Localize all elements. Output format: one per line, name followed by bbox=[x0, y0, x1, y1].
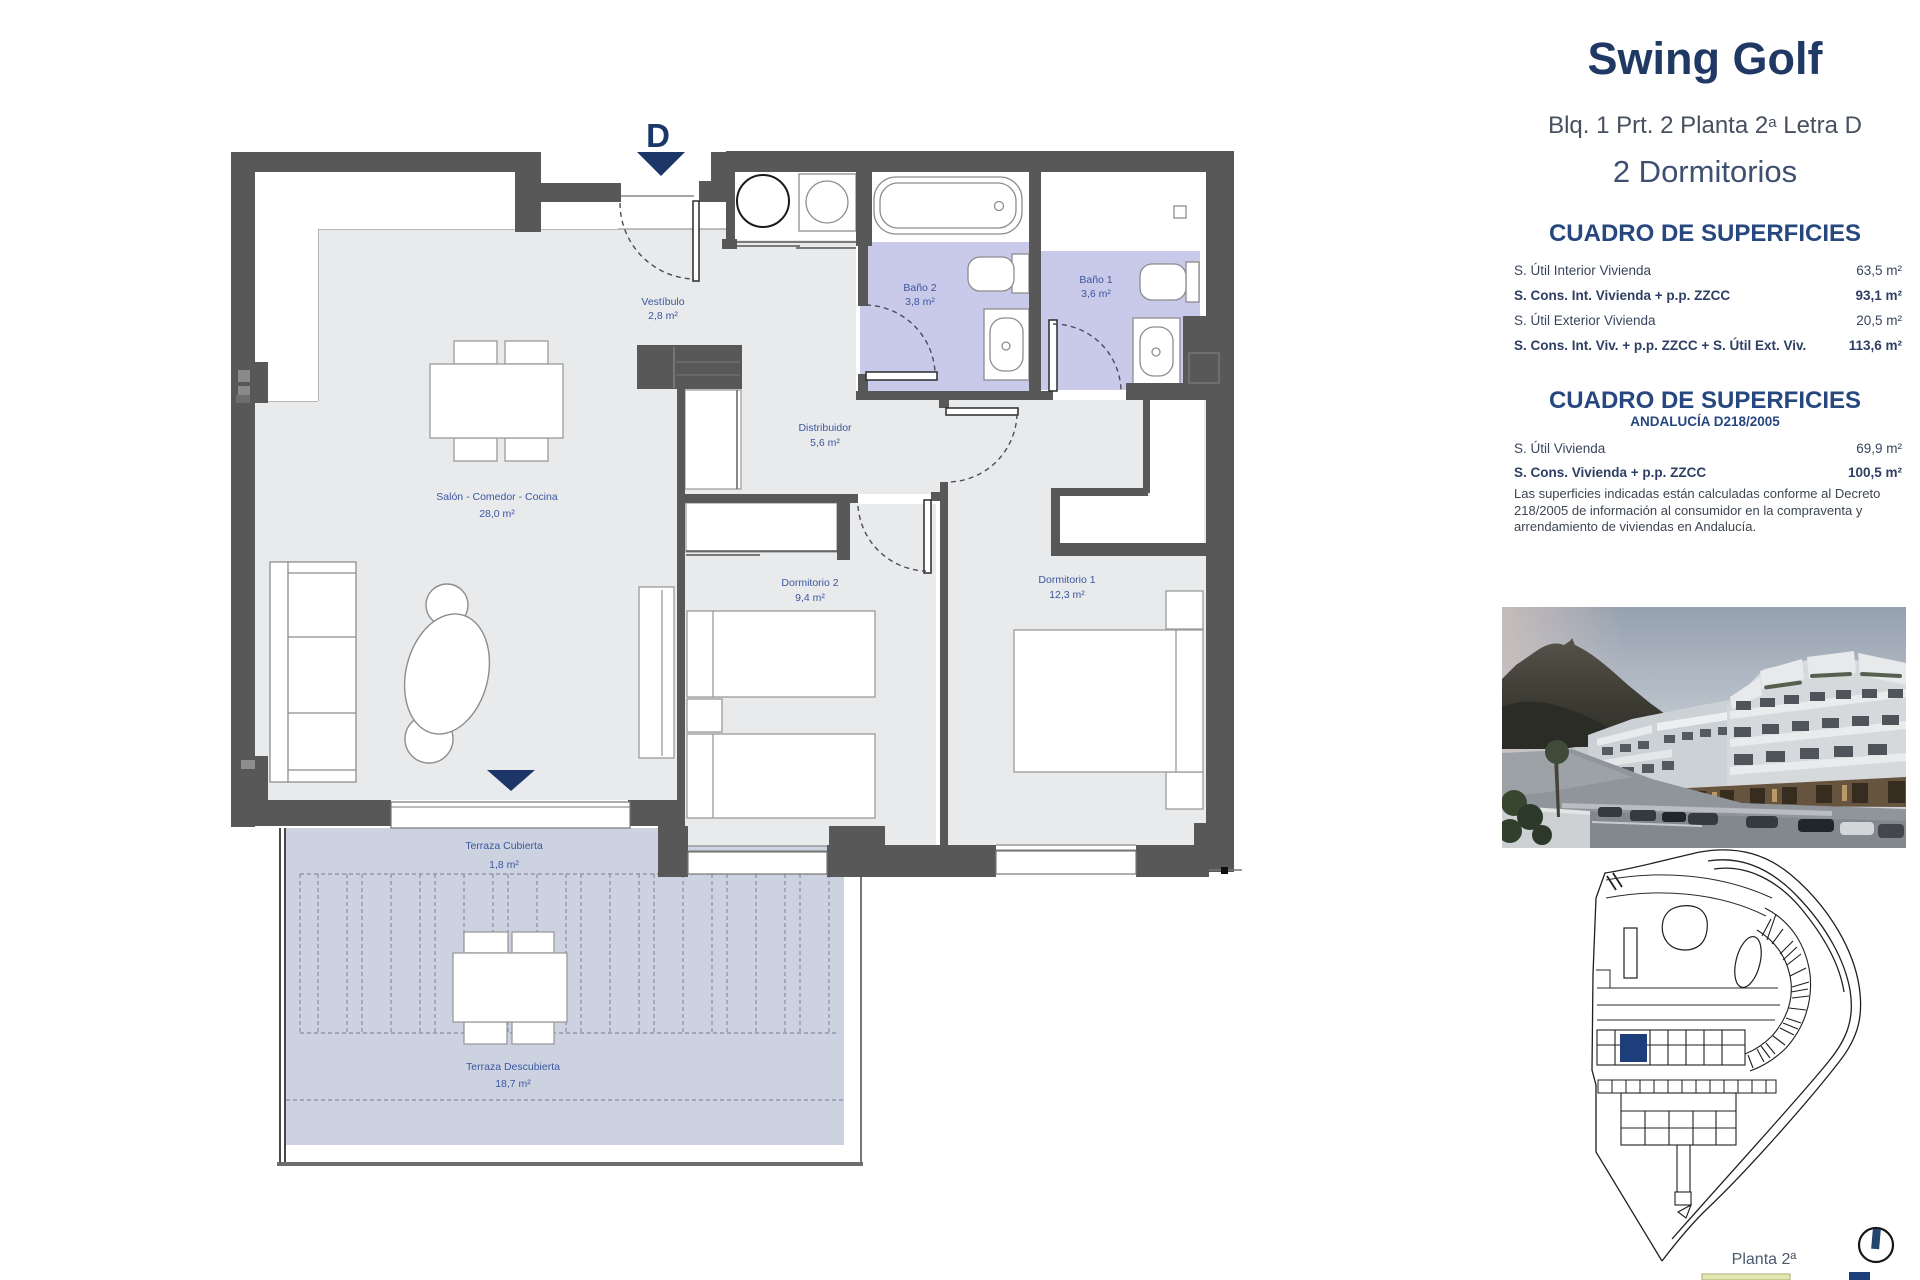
svg-text:28,0 m²: 28,0 m² bbox=[479, 508, 515, 520]
svg-text:5,6 m²: 5,6 m² bbox=[810, 437, 840, 449]
svg-text:Baño 1: Baño 1 bbox=[1079, 274, 1112, 286]
svg-text:Planta 2ª: Planta 2ª bbox=[1732, 1251, 1797, 1268]
svg-text:Terraza Descubierta: Terraza Descubierta bbox=[466, 1061, 560, 1073]
svg-text:Distribuidor: Distribuidor bbox=[798, 422, 852, 434]
svg-text:Dormitorio 2: Dormitorio 2 bbox=[781, 577, 838, 589]
svg-text:18,7 m²: 18,7 m² bbox=[495, 1078, 531, 1090]
svg-text:Baño 2: Baño 2 bbox=[903, 282, 936, 294]
svg-text:9,4 m²: 9,4 m² bbox=[795, 592, 825, 604]
svg-text:12,3 m²: 12,3 m² bbox=[1049, 589, 1085, 601]
svg-text:1,8 m²: 1,8 m² bbox=[489, 859, 519, 871]
svg-text:Terraza Cubierta: Terraza Cubierta bbox=[465, 840, 543, 852]
svg-text:D: D bbox=[646, 117, 670, 154]
svg-text:Dormitorio 1: Dormitorio 1 bbox=[1038, 574, 1095, 586]
svg-text:2,8 m²: 2,8 m² bbox=[648, 310, 678, 322]
svg-text:Vestíbulo: Vestíbulo bbox=[641, 296, 684, 308]
svg-text:3,8 m²: 3,8 m² bbox=[905, 296, 935, 308]
svg-text:Salón - Comedor - Cocina: Salón - Comedor - Cocina bbox=[436, 491, 558, 503]
svg-text:3,6 m²: 3,6 m² bbox=[1081, 288, 1111, 300]
